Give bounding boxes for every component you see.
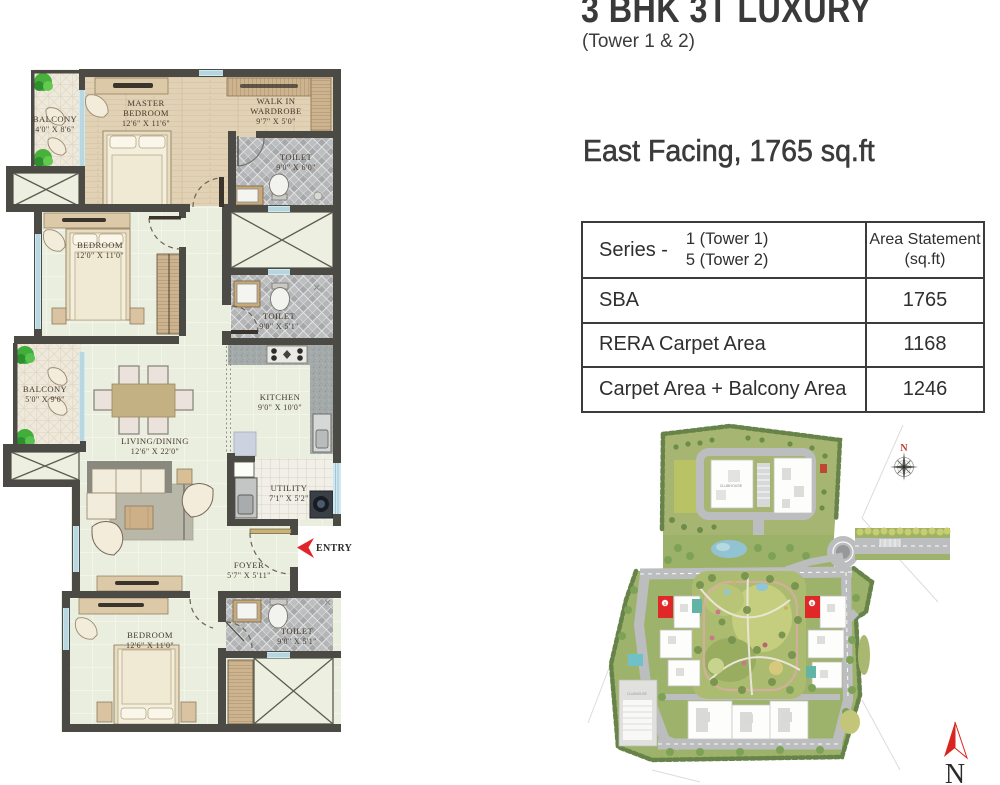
svg-text:CLUBHOUSE: CLUBHOUSE (720, 484, 743, 488)
svg-text:ENTRY: ENTRY (316, 543, 353, 554)
svg-text:N: N (945, 759, 965, 785)
svg-text:9'7" X 5'0": 9'7" X 5'0" (256, 117, 296, 126)
svg-text:9'0" X 5'1": 9'0" X 5'1" (259, 322, 299, 331)
svg-text:5'7" X 5'11": 5'7" X 5'11" (227, 571, 271, 580)
svg-text:BALCONY: BALCONY (33, 114, 77, 124)
svg-text:12'6" X 11'6": 12'6" X 11'6" (122, 119, 170, 128)
svg-text:CLUBHOUSE: CLUBHOUSE (627, 692, 647, 696)
svg-text:4'0" X 8'6": 4'0" X 8'6" (35, 125, 75, 134)
svg-text:9'0" X 5'1": 9'0" X 5'1" (277, 637, 317, 646)
svg-text:5'0" X 9'0": 5'0" X 9'0" (25, 395, 65, 404)
svg-text:9'0" X 6'0": 9'0" X 6'0" (276, 163, 316, 172)
svg-text:WARDROBE: WARDROBE (250, 106, 301, 116)
svg-text:BALCONY: BALCONY (23, 384, 67, 394)
svg-text:12'6" X 22'0": 12'6" X 22'0" (131, 447, 179, 456)
svg-text:N: N (900, 443, 908, 454)
svg-text:UTILITY: UTILITY (271, 483, 308, 493)
svg-text:KITCHEN: KITCHEN (260, 392, 301, 402)
svg-text:FOYER: FOYER (234, 560, 264, 570)
svg-text:7'1" X 5'2": 7'1" X 5'2" (269, 494, 309, 503)
svg-text:BEDROOM: BEDROOM (127, 630, 173, 640)
svg-text:TOILET: TOILET (263, 311, 296, 321)
svg-text:LIVING/DINING: LIVING/DINING (121, 436, 189, 446)
svg-text:BEDROOM: BEDROOM (123, 108, 169, 118)
svg-text:TOILET: TOILET (280, 152, 313, 162)
svg-text:9'0" X 10'0": 9'0" X 10'0" (258, 403, 302, 412)
svg-text:BEDROOM: BEDROOM (77, 240, 123, 250)
svg-text:TOILET: TOILET (281, 626, 314, 636)
svg-text:12'6" X 11'0": 12'6" X 11'0" (126, 641, 174, 650)
svg-text:MASTER: MASTER (127, 98, 164, 108)
svg-text:WALK IN: WALK IN (257, 96, 296, 106)
svg-text:12'0" X 11'0": 12'0" X 11'0" (76, 251, 124, 260)
